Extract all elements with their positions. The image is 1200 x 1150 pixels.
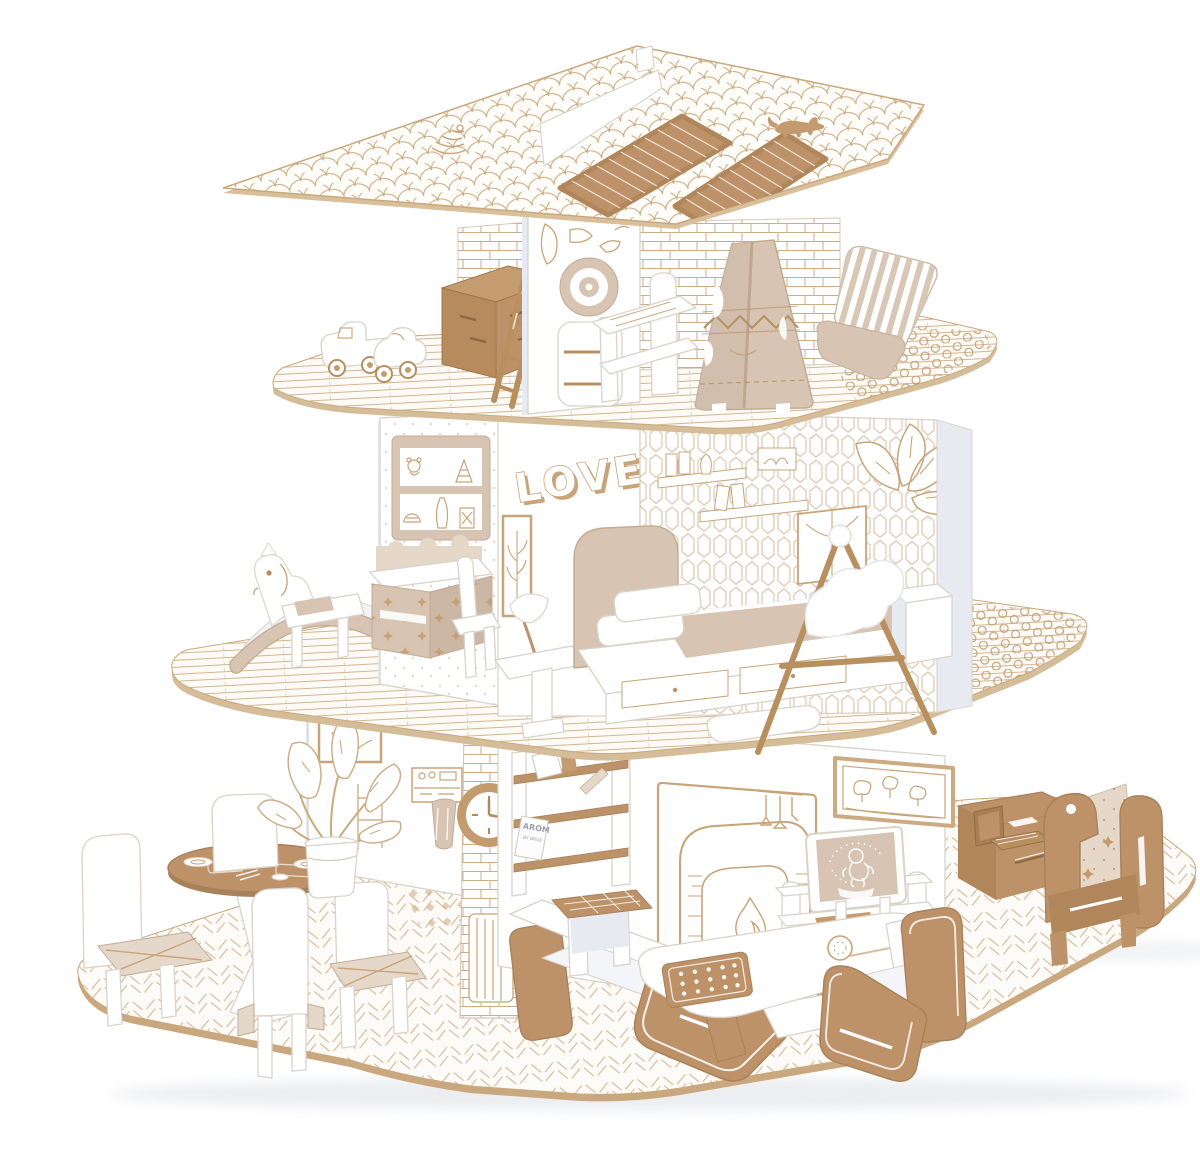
horse-eye — [266, 570, 271, 575]
toy-shelf-wall-print — [392, 436, 490, 540]
plant-pot — [306, 842, 358, 898]
hanging-towel — [432, 799, 456, 849]
kitchen-unit-print — [412, 768, 462, 802]
top-floor — [260, 210, 1020, 436]
small-frame-print — [758, 448, 796, 470]
dollhouse-illustration: AROM BY BRUE — [40, 16, 1200, 1134]
ground-floor: AROM BY BRUE — [70, 706, 1200, 1106]
roof — [210, 36, 940, 236]
middle-floor: LOVE LOVE — [160, 410, 1100, 766]
dollhouse-photo: AROM BY BRUE — [40, 16, 1200, 1134]
window-print — [835, 758, 953, 826]
horse-ear — [261, 543, 276, 556]
ridge-tab — [636, 46, 654, 72]
wall-side-face — [937, 420, 972, 712]
